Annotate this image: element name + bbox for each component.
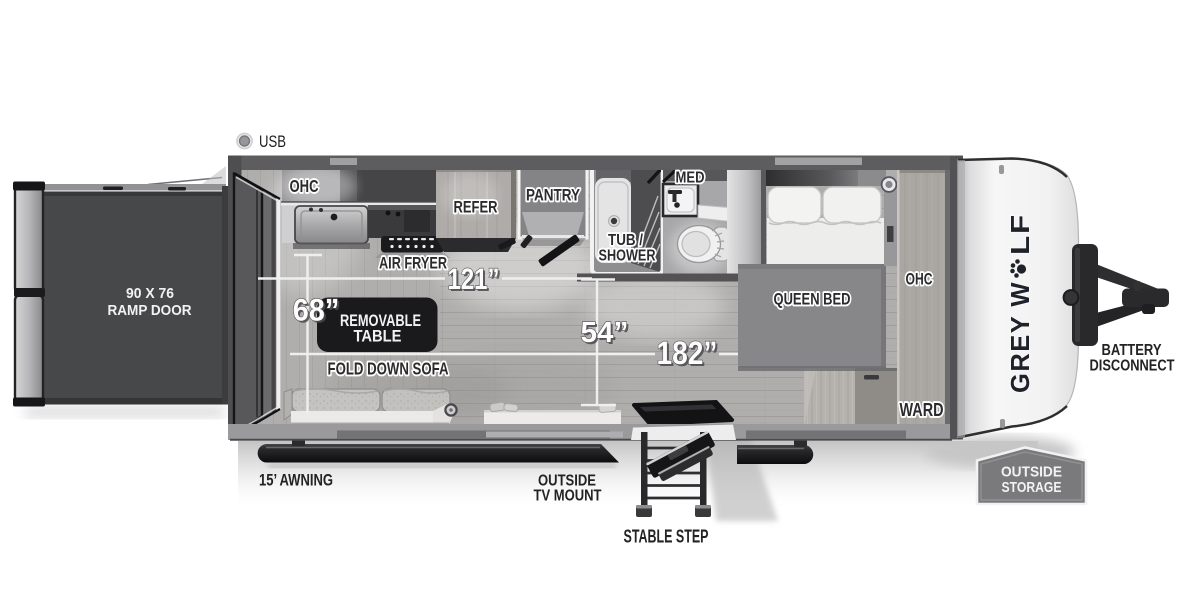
svg-text:FOLD DOWN SOFA: FOLD DOWN SOFA bbox=[328, 359, 449, 379]
svg-text:54”: 54” bbox=[581, 317, 629, 349]
svg-text:68”: 68” bbox=[293, 292, 340, 328]
svg-text:BATTERY: BATTERY bbox=[1102, 342, 1162, 359]
svg-text:OHC: OHC bbox=[906, 271, 933, 289]
svg-text:182”: 182” bbox=[657, 335, 718, 371]
svg-text:TABLE: TABLE bbox=[354, 328, 402, 346]
svg-text:TUB /: TUB / bbox=[608, 232, 644, 249]
svg-text:15’ AWNING: 15’ AWNING bbox=[259, 471, 333, 490]
svg-text:REFER: REFER bbox=[454, 199, 498, 217]
svg-text:PANTRY: PANTRY bbox=[526, 187, 580, 205]
svg-text:STABLE STEP: STABLE STEP bbox=[624, 527, 709, 547]
svg-text:OUTSIDE: OUTSIDE bbox=[1001, 464, 1062, 481]
svg-text:GREY W: GREY W bbox=[1005, 281, 1035, 393]
svg-text:LF: LF bbox=[1005, 213, 1035, 255]
svg-text:QUEEN BED: QUEEN BED bbox=[774, 291, 851, 309]
svg-text:121”: 121” bbox=[448, 263, 500, 296]
svg-text:WARD: WARD bbox=[900, 399, 944, 420]
svg-text:USB: USB bbox=[259, 133, 286, 151]
svg-text:TV MOUNT: TV MOUNT bbox=[534, 488, 602, 505]
svg-text:AIR FRYER: AIR FRYER bbox=[379, 255, 447, 273]
svg-text:SHOWER: SHOWER bbox=[599, 248, 656, 265]
svg-text:OHC: OHC bbox=[290, 176, 319, 196]
svg-text:DISCONNECT: DISCONNECT bbox=[1090, 358, 1175, 375]
svg-text:STORAGE: STORAGE bbox=[1002, 479, 1062, 496]
svg-text:MED: MED bbox=[676, 170, 705, 187]
svg-text:90 X 76: 90 X 76 bbox=[126, 285, 174, 302]
svg-text:RAMP DOOR: RAMP DOOR bbox=[108, 302, 192, 319]
